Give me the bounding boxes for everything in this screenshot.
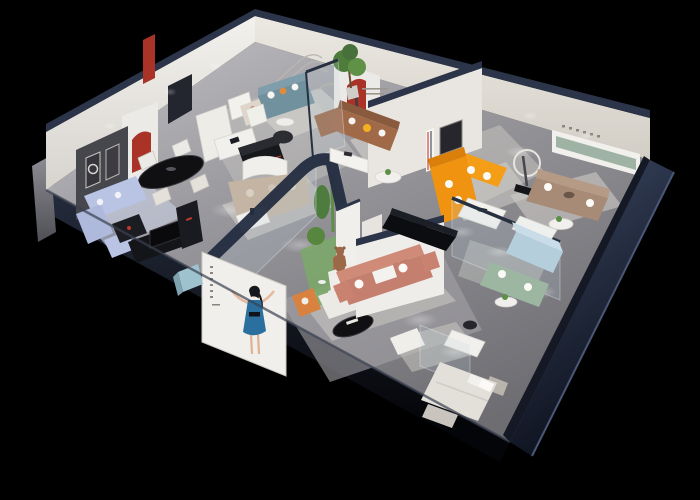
pillow <box>349 118 356 125</box>
tree-foliage <box>348 58 366 76</box>
pillow <box>498 270 506 278</box>
pillow <box>97 199 103 205</box>
pillow <box>467 166 475 174</box>
table-plant <box>502 294 508 300</box>
tree-foliage <box>342 44 358 60</box>
pillow <box>445 180 453 188</box>
pillow <box>246 189 254 197</box>
pillow <box>355 280 364 289</box>
pillow <box>524 283 532 291</box>
office-chair <box>273 131 293 144</box>
red-table-decor <box>127 226 131 230</box>
round-coffee-table <box>276 118 294 126</box>
isometric-scene: 华悦 <box>0 0 700 500</box>
pillow-yellow <box>363 124 371 132</box>
wall-art-frame-2 <box>106 144 119 180</box>
bear-ear <box>342 246 345 249</box>
pillow <box>292 84 299 91</box>
showroom-render: 华悦 <box>0 0 700 500</box>
pillow <box>544 183 552 191</box>
pillow <box>586 199 594 207</box>
pillow <box>379 130 386 137</box>
table-centerpiece <box>166 167 176 171</box>
red-display-panel <box>143 34 155 84</box>
pebble <box>318 280 326 284</box>
table-plant <box>385 169 391 175</box>
woman-leg <box>251 334 252 354</box>
pillow <box>399 264 408 273</box>
bear-ear <box>334 246 337 249</box>
pillow-orange <box>280 88 287 95</box>
lumbar-pillow <box>564 192 575 198</box>
armchair-cushion <box>302 298 309 305</box>
black-desk-chair <box>463 321 477 330</box>
atrium-foliage <box>307 227 325 245</box>
pillow <box>483 172 491 180</box>
woman-leg <box>258 334 259 354</box>
pillow <box>267 91 274 98</box>
pillow <box>115 192 121 198</box>
table-plant <box>556 216 562 222</box>
dress-waist-band <box>249 312 260 317</box>
glass-entry-door <box>306 60 345 158</box>
